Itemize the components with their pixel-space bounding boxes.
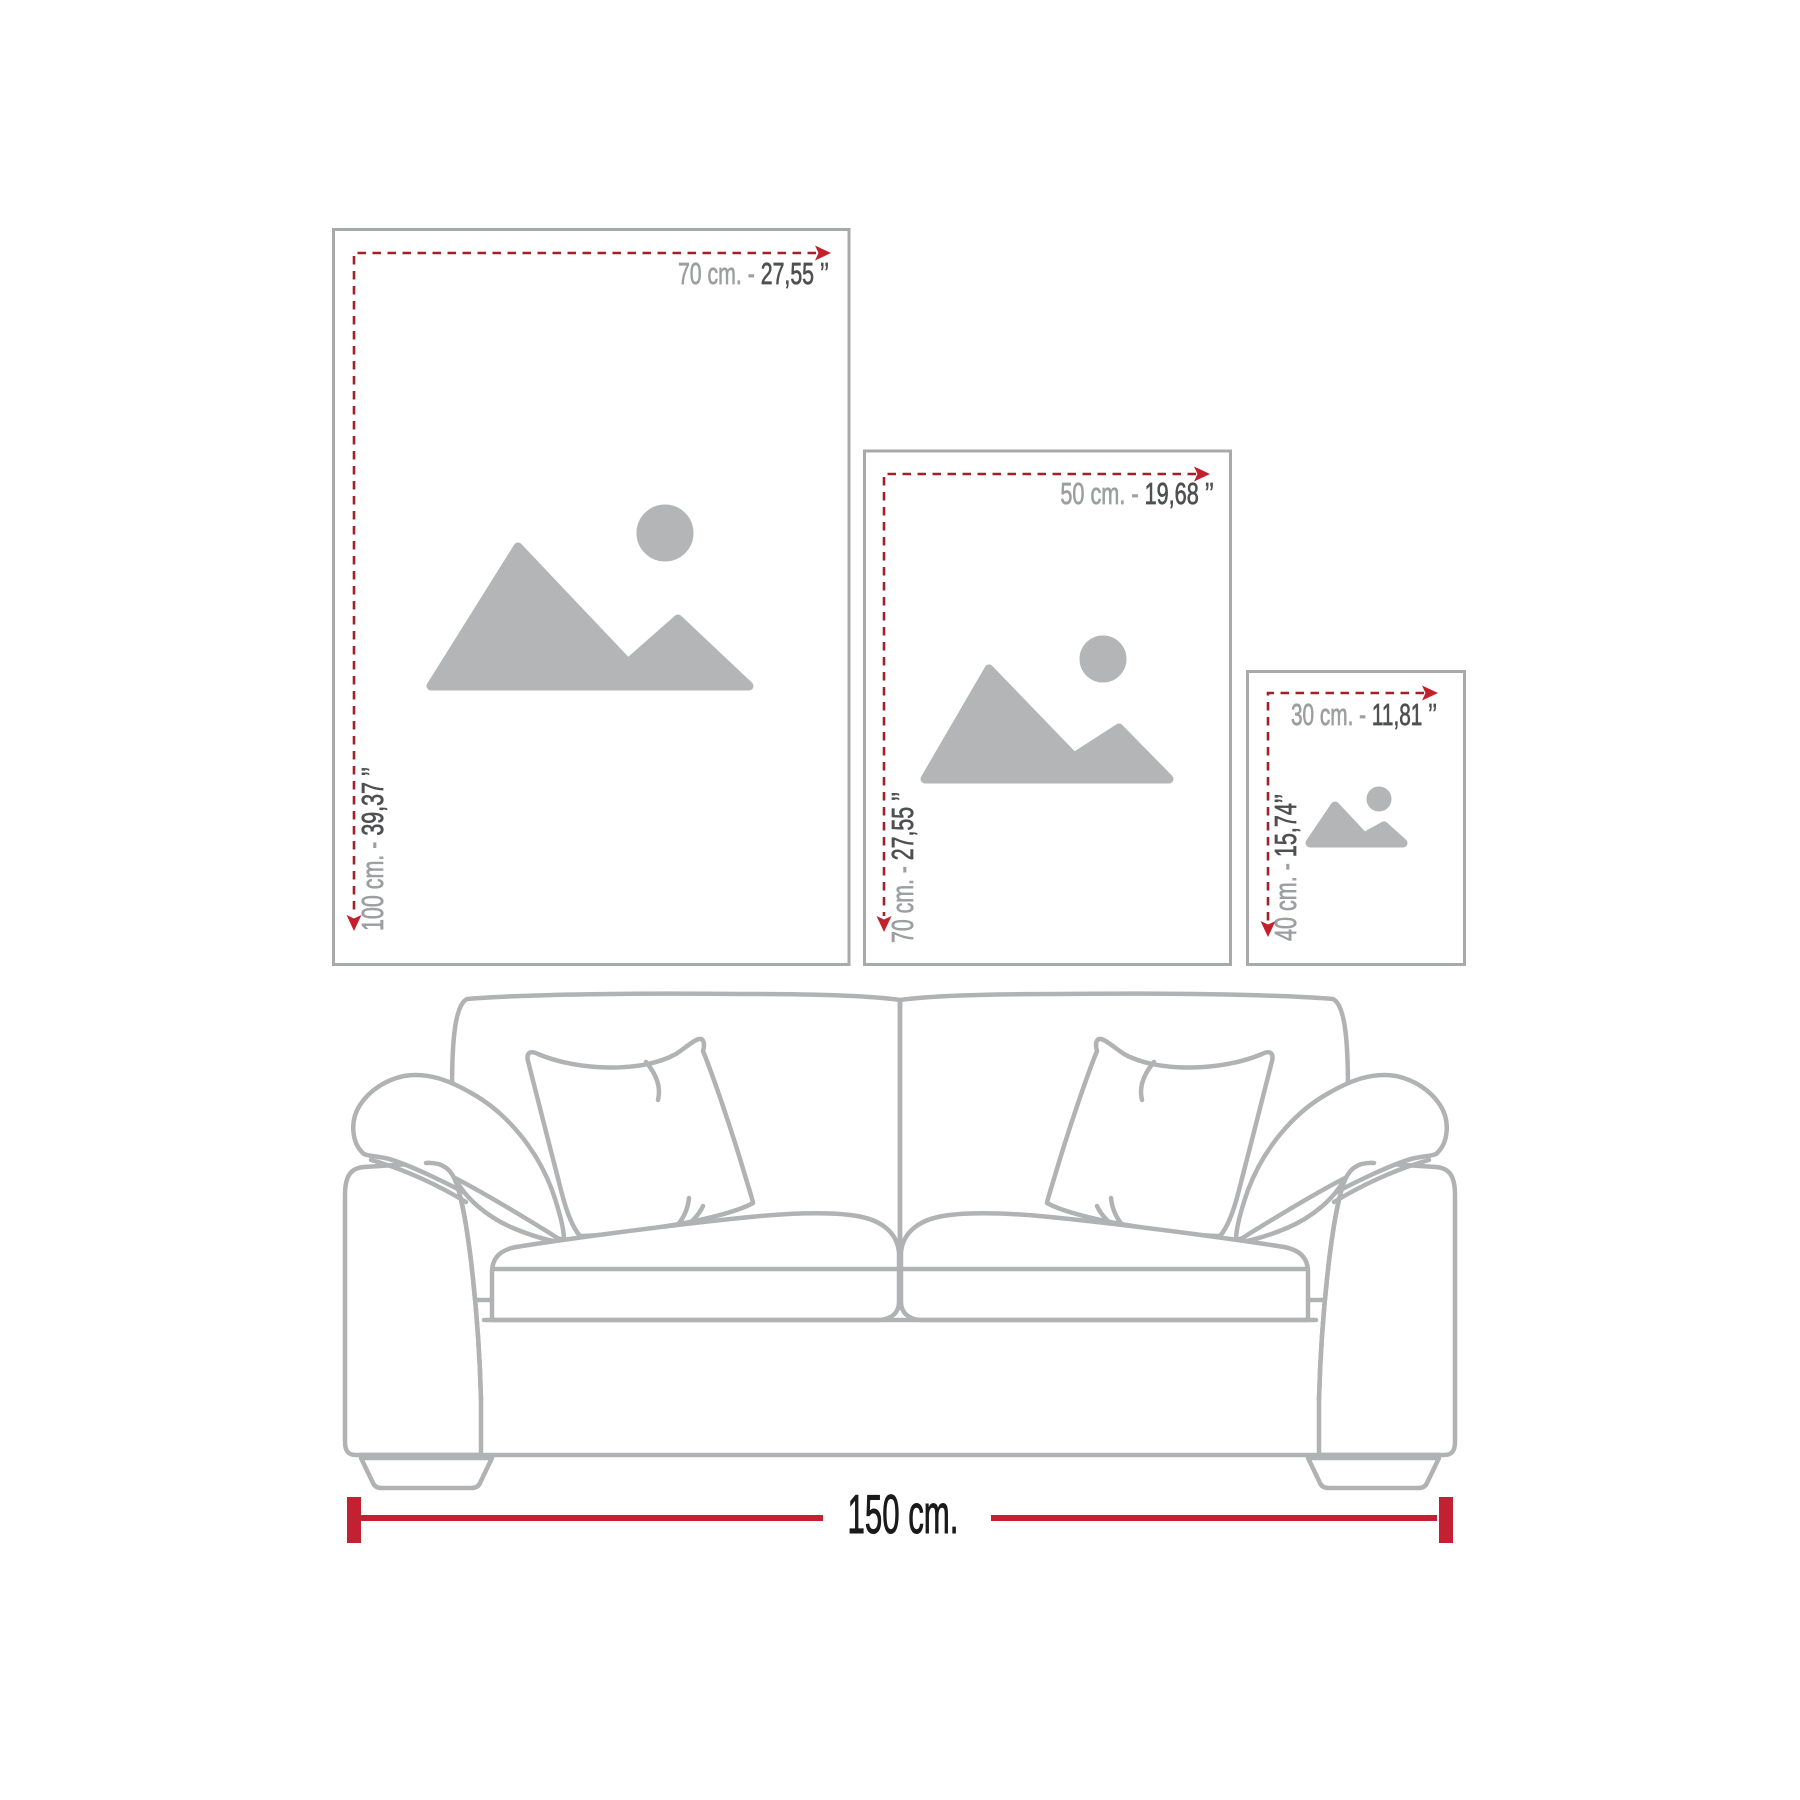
svg-text:150 cm.: 150 cm.	[848, 1485, 959, 1545]
svg-text:70 cm. - 27,55 ’’: 70 cm. - 27,55 ’’	[678, 256, 829, 291]
svg-text:30 cm. - 11,81 ’’: 30 cm. - 11,81 ’’	[1291, 697, 1437, 732]
svg-text:40 cm. - 15,74’’: 40 cm. - 15,74’’	[1268, 794, 1303, 941]
svg-text:70 cm. - 27,55 ’’: 70 cm. - 27,55 ’’	[885, 792, 920, 943]
svg-text:100 cm. - 39,37 ’’: 100 cm. - 39,37 ’’	[355, 767, 390, 931]
svg-text:50 cm. - 19,68 ’’: 50 cm. - 19,68 ’’	[1060, 476, 1214, 511]
